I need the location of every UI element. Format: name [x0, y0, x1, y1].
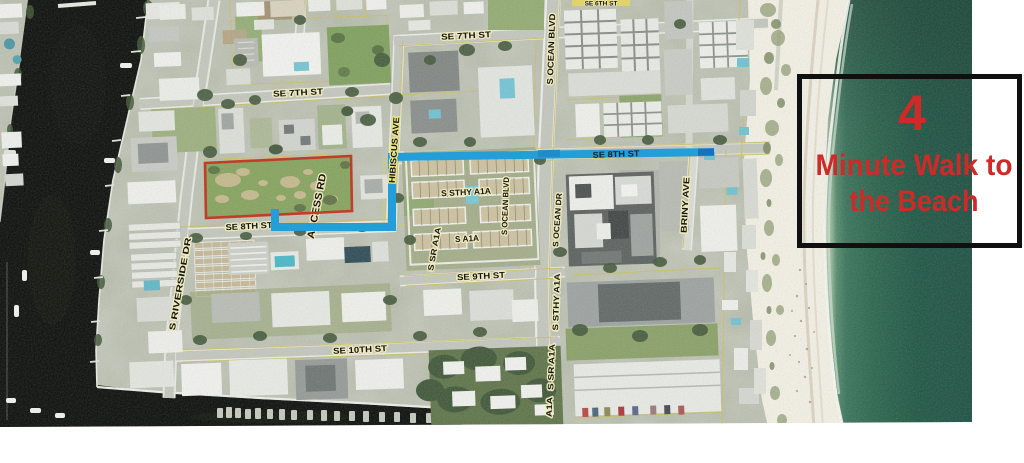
svg-text:A1A: A1A	[545, 397, 555, 418]
svg-text:SE 8TH ST: SE 8TH ST	[592, 148, 640, 160]
svg-text:the Beach: the Beach	[850, 185, 979, 218]
svg-text:Minute Walk to: Minute Walk to	[816, 149, 1013, 182]
svg-text:S A1A: S A1A	[455, 233, 479, 244]
svg-text:S SR A1A: S SR A1A	[546, 344, 557, 391]
svg-text:4: 4	[898, 85, 926, 141]
svg-text:SE 6TH ST: SE 6TH ST	[585, 1, 618, 8]
